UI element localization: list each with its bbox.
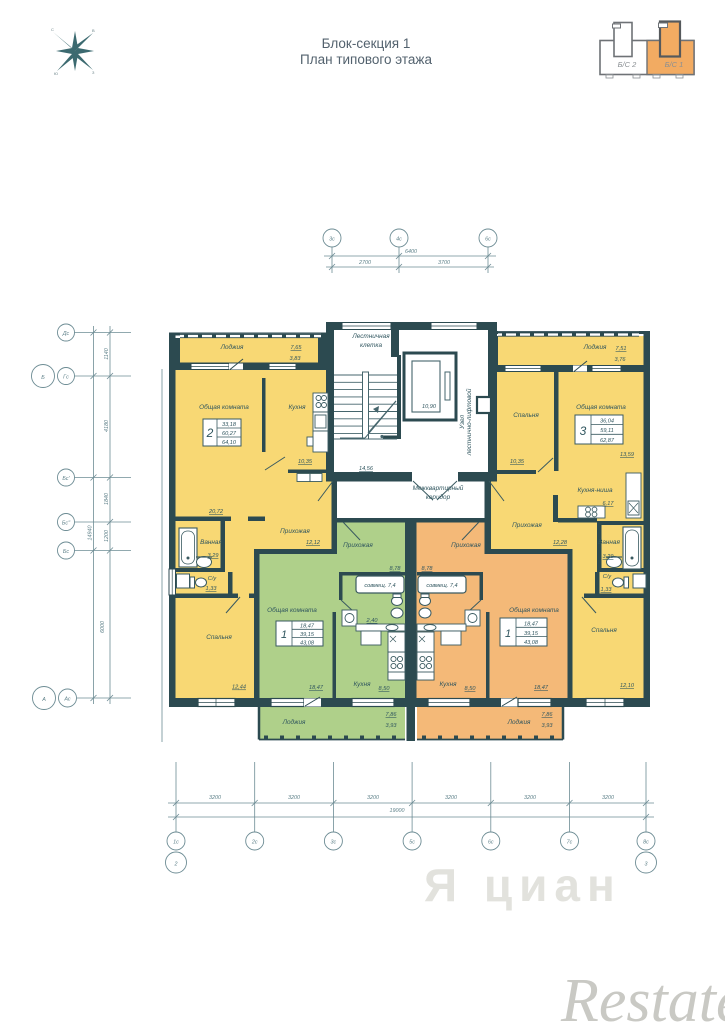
svg-text:3,93: 3,93 [542, 723, 554, 729]
svg-text:3700: 3700 [438, 260, 450, 266]
svg-text:План типового этажа: План типового этажа [300, 52, 432, 67]
svg-text:Дс: Дс [62, 331, 70, 337]
svg-text:3200: 3200 [445, 795, 457, 801]
svg-text:2: 2 [174, 862, 178, 868]
svg-text:3,29: 3,29 [208, 553, 219, 559]
svg-text:Прихожая: Прихожая [451, 542, 481, 549]
svg-text:5с: 5с [409, 840, 415, 846]
svg-text:19000: 19000 [390, 808, 405, 814]
svg-text:8с: 8с [643, 840, 649, 846]
svg-text:Кухня: Кухня [288, 404, 306, 411]
svg-text:3200: 3200 [367, 795, 379, 801]
svg-text:1,33: 1,33 [601, 587, 613, 593]
svg-text:10,35: 10,35 [510, 459, 525, 465]
svg-text:3с: 3с [329, 237, 335, 243]
svg-text:А: А [41, 697, 46, 703]
svg-text:3,93: 3,93 [386, 723, 398, 729]
svg-text:Ю: Ю [54, 71, 58, 76]
svg-text:Б/С 2: Б/С 2 [618, 60, 637, 69]
svg-text:коридор: коридор [426, 493, 451, 501]
svg-text:Спальня: Спальня [513, 412, 539, 419]
svg-text:Ванная: Ванная [200, 539, 222, 546]
svg-text:18,47: 18,47 [309, 685, 324, 691]
svg-text:33,18: 33,18 [222, 422, 237, 428]
svg-text:1с: 1с [173, 840, 179, 846]
svg-text:39,15: 39,15 [300, 632, 315, 638]
svg-text:60,27: 60,27 [222, 431, 237, 437]
svg-text:62,87: 62,87 [600, 438, 615, 444]
svg-text:Прихожая: Прихожая [512, 522, 542, 529]
svg-text:Бс'': Бс'' [62, 521, 71, 527]
svg-text:Бс: Бс [63, 549, 70, 555]
svg-text:Блок-секция 1: Блок-секция 1 [322, 36, 411, 51]
svg-text:1140: 1140 [104, 348, 110, 360]
svg-text:Узел: Узел [459, 415, 466, 430]
svg-text:Ванная: Ванная [598, 539, 620, 546]
svg-text:10,35: 10,35 [298, 459, 313, 465]
svg-text:Общая комната: Общая комната [199, 403, 249, 411]
svg-text:Бс': Бс' [62, 476, 70, 482]
svg-text:6с: 6с [488, 840, 494, 846]
svg-text:2,40: 2,40 [366, 618, 379, 624]
svg-text:7,86: 7,86 [386, 712, 398, 718]
svg-text:2700: 2700 [358, 260, 371, 266]
svg-text:6с: 6с [485, 237, 491, 243]
svg-text:Ас: Ас [63, 697, 71, 703]
svg-text:59,11: 59,11 [600, 428, 614, 434]
svg-text:18,47: 18,47 [534, 685, 549, 691]
svg-text:2с: 2с [251, 840, 258, 846]
svg-text:Прихожая: Прихожая [343, 542, 373, 549]
svg-text:совмещ. 7,4: совмещ. 7,4 [364, 583, 395, 589]
svg-text:7,86: 7,86 [542, 712, 554, 718]
svg-text:1: 1 [505, 628, 511, 640]
svg-text:4с: 4с [396, 237, 402, 243]
svg-text:14,56: 14,56 [359, 466, 374, 472]
svg-text:Общая комната: Общая комната [576, 403, 626, 411]
svg-text:8,78: 8,78 [422, 566, 434, 572]
svg-text:20,72: 20,72 [208, 509, 224, 515]
svg-text:3200: 3200 [209, 795, 221, 801]
svg-text:Гс: Гс [63, 375, 69, 381]
svg-text:1: 1 [281, 629, 287, 641]
svg-text:Лоджия: Лоджия [220, 343, 244, 351]
svg-text:12,28: 12,28 [553, 540, 568, 546]
svg-text:совмещ. 7,4: совмещ. 7,4 [426, 583, 457, 589]
svg-text:лестнично-лифтовой: лестнично-лифтовой [465, 388, 473, 456]
svg-text:Общая комната: Общая комната [509, 606, 559, 614]
svg-text:Спальня: Спальня [206, 634, 232, 641]
svg-text:Лоджия: Лоджия [583, 343, 607, 351]
svg-text:12,10: 12,10 [620, 683, 635, 689]
svg-text:Лестничная: Лестничная [351, 333, 390, 340]
svg-text:6,17: 6,17 [603, 501, 615, 507]
svg-text:43,08: 43,08 [524, 640, 539, 646]
svg-text:36,04: 36,04 [600, 419, 614, 425]
svg-text:Общая комната: Общая комната [267, 606, 317, 614]
svg-text:Межквартирный: Межквартирный [413, 484, 464, 492]
svg-text:Лоджия: Лоджия [507, 718, 531, 726]
svg-text:Б/С 1: Б/С 1 [665, 60, 684, 69]
svg-text:6400: 6400 [405, 249, 417, 255]
svg-text:1840: 1840 [104, 493, 110, 505]
svg-text:Кухня: Кухня [439, 681, 457, 688]
svg-text:С/у: С/у [603, 574, 613, 580]
svg-text:3,83: 3,83 [290, 356, 302, 362]
svg-text:Кухня: Кухня [353, 681, 371, 688]
svg-text:3с: 3с [331, 840, 337, 846]
svg-text:8,50: 8,50 [465, 686, 477, 692]
svg-text:18,47: 18,47 [300, 624, 315, 630]
svg-text:13,59: 13,59 [620, 452, 634, 458]
svg-text:3200: 3200 [288, 795, 300, 801]
svg-text:Я циан: Я циан [424, 859, 622, 911]
svg-text:B: B [92, 28, 95, 33]
svg-text:64,10: 64,10 [222, 440, 237, 446]
svg-text:1200: 1200 [104, 530, 110, 542]
svg-text:39,15: 39,15 [524, 631, 539, 637]
svg-text:3200: 3200 [524, 795, 536, 801]
svg-text:3200: 3200 [602, 795, 614, 801]
svg-text:С/у: С/у [208, 576, 218, 582]
svg-text:C: C [51, 27, 54, 32]
svg-text:Б: Б [41, 375, 45, 381]
svg-text:Лоджия: Лоджия [282, 718, 306, 726]
svg-text:4180: 4180 [104, 420, 110, 432]
svg-text:18,47: 18,47 [524, 622, 539, 628]
svg-text:8,78: 8,78 [390, 566, 402, 572]
svg-text:43,08: 43,08 [300, 640, 315, 646]
svg-text:Кухня-ниша: Кухня-ниша [577, 487, 613, 494]
svg-text:8,50: 8,50 [379, 686, 391, 692]
svg-text:клетка: клетка [360, 342, 382, 349]
svg-text:10,90: 10,90 [422, 404, 437, 410]
svg-text:12,44: 12,44 [232, 685, 246, 691]
svg-text:1,33: 1,33 [206, 586, 218, 592]
svg-text:3: 3 [580, 424, 587, 438]
svg-text:7,65: 7,65 [291, 345, 303, 351]
svg-text:7с: 7с [567, 840, 573, 846]
svg-text:2: 2 [206, 426, 214, 440]
svg-text:3: 3 [645, 862, 648, 868]
svg-text:Спальня: Спальня [591, 627, 617, 634]
svg-text:6000: 6000 [100, 621, 106, 633]
svg-text:Прихожая: Прихожая [280, 528, 310, 535]
svg-text:7,51: 7,51 [616, 346, 627, 352]
svg-text:3,29: 3,29 [603, 554, 614, 560]
svg-text:12,12: 12,12 [306, 540, 321, 546]
svg-text:14940: 14940 [88, 526, 94, 541]
svg-text:Restate: Restate [560, 967, 725, 1026]
svg-text:3,76: 3,76 [615, 357, 627, 363]
